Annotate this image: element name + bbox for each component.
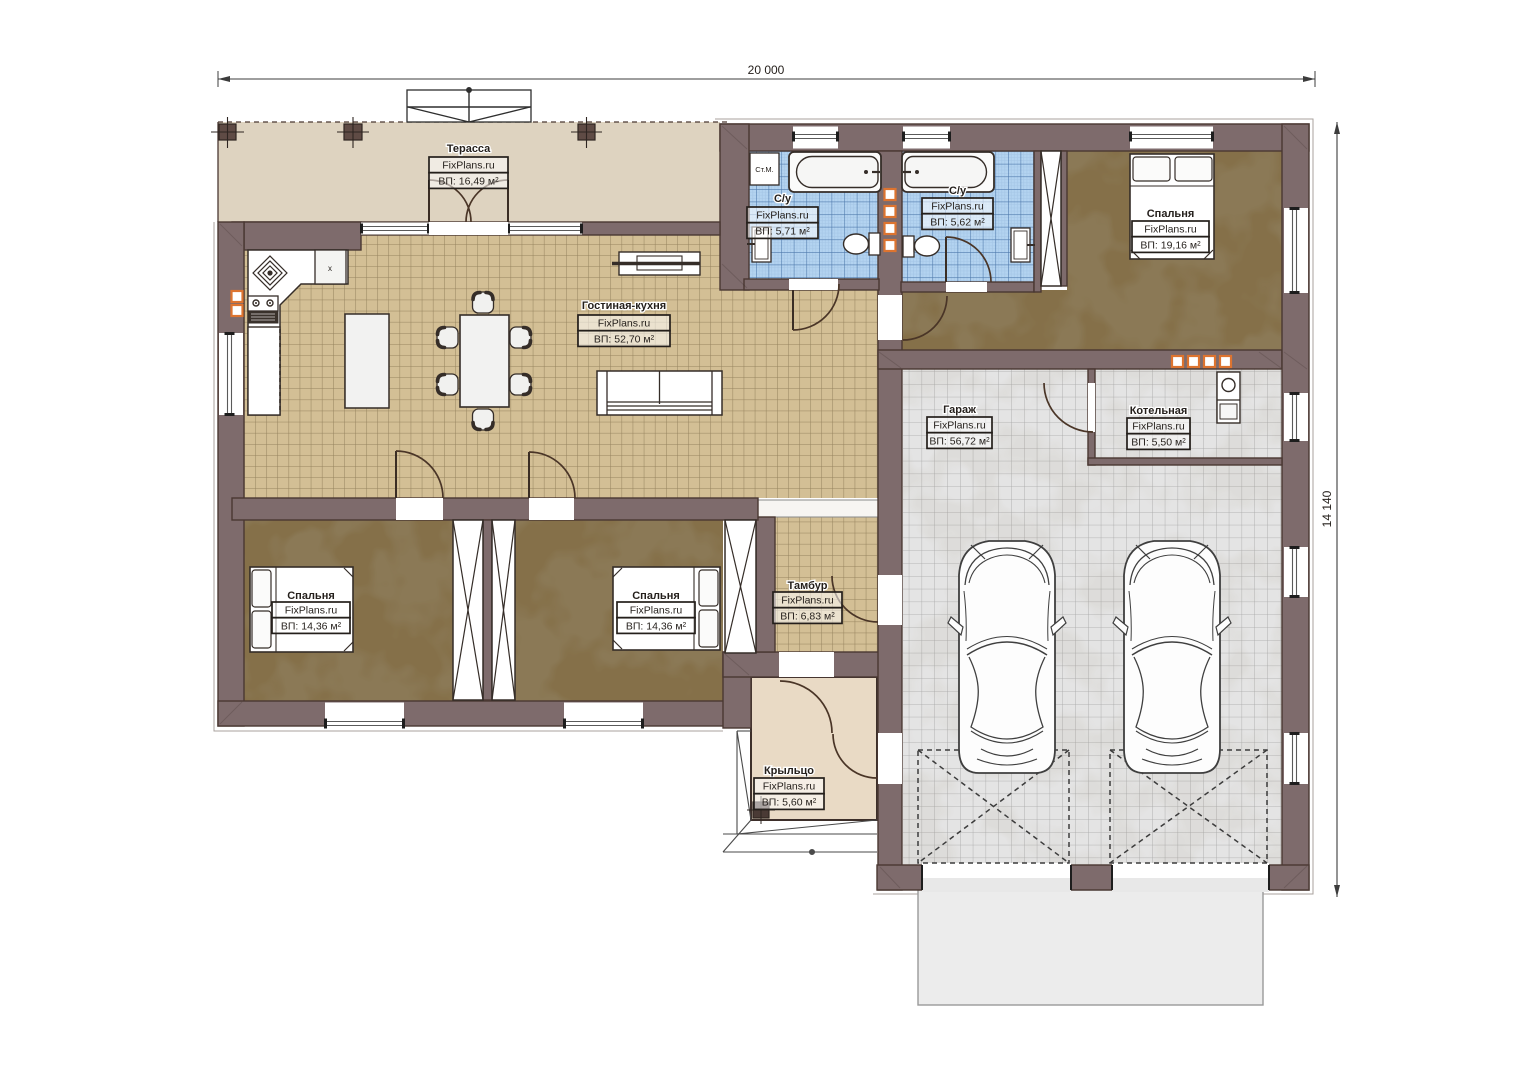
svg-text:ВП: 5,71 м²: ВП: 5,71 м² [755, 225, 810, 237]
svg-text:14 140: 14 140 [1320, 490, 1334, 527]
svg-text:ВП: 14,36 м²: ВП: 14,36 м² [626, 620, 687, 632]
svg-text:Тамбур: Тамбур [788, 580, 828, 592]
svg-text:ВП: 19,16 м²: ВП: 19,16 м² [1140, 239, 1201, 251]
svg-text:FixPlans.ru: FixPlans.ru [781, 595, 834, 607]
svg-text:Спальня: Спальня [287, 590, 335, 602]
svg-text:FixPlans.ru: FixPlans.ru [442, 160, 495, 172]
svg-text:Терасса: Терасса [447, 143, 491, 155]
svg-text:Спальня: Спальня [632, 590, 680, 602]
svg-text:Гостиная-кухня: Гостиная-кухня [582, 300, 666, 312]
svg-text:ВП: 16,49 м²: ВП: 16,49 м² [438, 175, 499, 187]
svg-text:FixPlans.ru: FixPlans.ru [1144, 224, 1197, 236]
svg-text:ВП: 6,83 м²: ВП: 6,83 м² [780, 610, 835, 622]
svg-text:ВП: 5,60 м²: ВП: 5,60 м² [762, 796, 817, 808]
svg-text:FixPlans.ru: FixPlans.ru [630, 605, 683, 617]
svg-text:FixPlans.ru: FixPlans.ru [285, 605, 338, 617]
svg-text:ВП: 5,50 м²: ВП: 5,50 м² [1131, 436, 1186, 448]
svg-text:FixPlans.ru: FixPlans.ru [763, 781, 816, 793]
svg-text:x: x [328, 264, 332, 273]
svg-text:ВП: 5,62 м²: ВП: 5,62 м² [930, 216, 985, 228]
svg-text:FixPlans.ru: FixPlans.ru [931, 201, 984, 213]
svg-text:ВП: 14,36 м²: ВП: 14,36 м² [281, 620, 342, 632]
svg-text:С/у: С/у [949, 185, 967, 197]
svg-text:FixPlans.ru: FixPlans.ru [1132, 421, 1185, 433]
svg-text:ВП: 56,72 м²: ВП: 56,72 м² [929, 435, 990, 447]
svg-text:Гараж: Гараж [943, 404, 976, 416]
svg-text:Котельная: Котельная [1130, 405, 1188, 417]
svg-text:С/у: С/у [774, 193, 792, 205]
svg-text:Ст.М.: Ст.М. [755, 165, 773, 174]
svg-text:FixPlans.ru: FixPlans.ru [933, 420, 986, 432]
svg-text:Крыльцо: Крыльцо [764, 765, 814, 777]
svg-text:Спальня: Спальня [1147, 208, 1195, 220]
svg-text:20 000: 20 000 [748, 63, 785, 77]
svg-text:ВП: 52,70 м²: ВП: 52,70 м² [594, 333, 655, 345]
svg-text:FixPlans.ru: FixPlans.ru [756, 210, 809, 222]
svg-text:FixPlans.ru: FixPlans.ru [598, 318, 651, 330]
